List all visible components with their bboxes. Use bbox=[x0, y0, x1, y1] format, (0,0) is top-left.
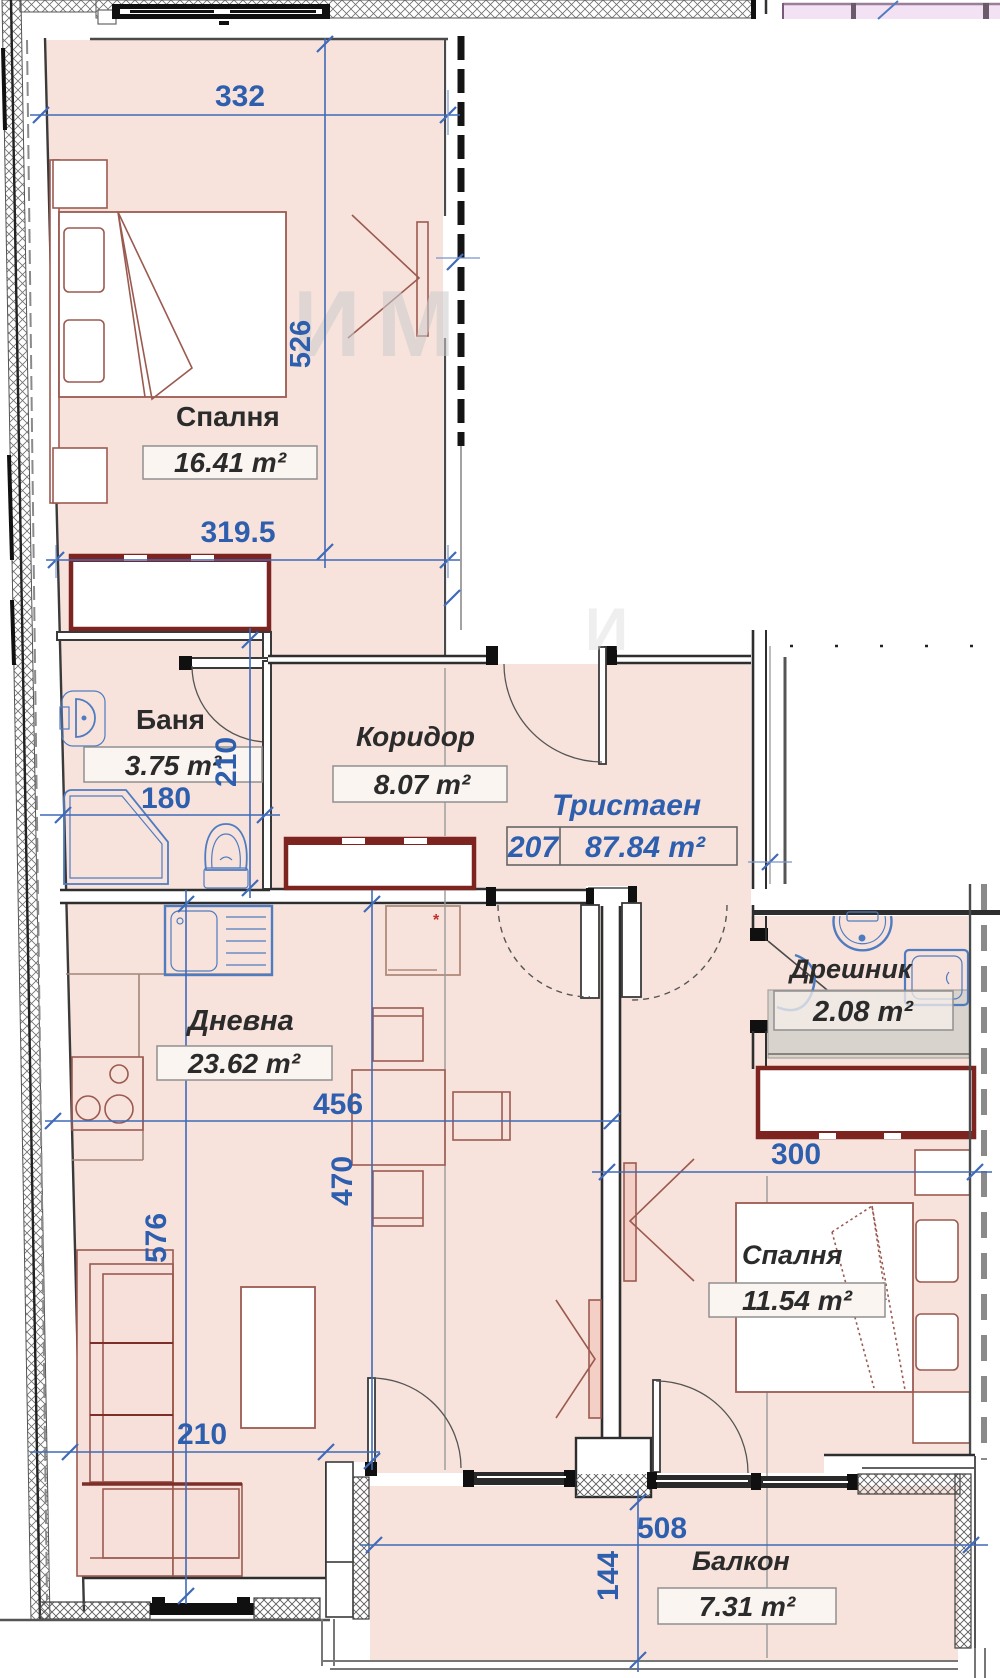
svg-text:210: 210 bbox=[177, 1418, 227, 1451]
svg-text:Спалня: Спалня bbox=[742, 1240, 842, 1270]
svg-text:207: 207 bbox=[507, 831, 559, 864]
svg-text:508: 508 bbox=[637, 1512, 687, 1545]
svg-text:Дрешник: Дрешник bbox=[788, 954, 913, 984]
svg-text:332: 332 bbox=[215, 80, 265, 113]
svg-text:180: 180 bbox=[141, 782, 191, 815]
svg-text:Балкон: Балкон bbox=[692, 1546, 790, 1576]
svg-text:8.07 m²: 8.07 m² bbox=[374, 769, 471, 800]
svg-text:23.62 m²: 23.62 m² bbox=[187, 1048, 301, 1079]
svg-text:210: 210 bbox=[210, 737, 243, 787]
svg-text:*: * bbox=[433, 912, 440, 929]
svg-text:319.5: 319.5 bbox=[200, 516, 275, 549]
svg-text:Баня: Баня bbox=[136, 704, 205, 735]
svg-text:16.41 m²: 16.41 m² bbox=[174, 447, 287, 478]
svg-text:ИМ: ИМ bbox=[293, 271, 471, 376]
svg-text:300: 300 bbox=[771, 1138, 821, 1171]
svg-text:456: 456 bbox=[313, 1088, 363, 1121]
svg-text:576: 576 bbox=[140, 1213, 173, 1263]
svg-text:144: 144 bbox=[592, 1551, 625, 1601]
svg-text:11.54 m²: 11.54 m² bbox=[742, 1285, 853, 1316]
svg-text:Тристаен: Тристаен bbox=[552, 789, 701, 822]
svg-text:Дневна: Дневна bbox=[185, 1005, 294, 1037]
svg-text:И: И bbox=[585, 596, 628, 663]
svg-text:2.08 m²: 2.08 m² bbox=[812, 996, 914, 1028]
svg-text:Спалня: Спалня bbox=[176, 401, 280, 432]
svg-text:526: 526 bbox=[285, 320, 317, 368]
svg-text:87.84 m²: 87.84 m² bbox=[585, 831, 706, 864]
svg-text:470: 470 bbox=[326, 1156, 359, 1206]
svg-text:Коридор: Коридор bbox=[356, 721, 475, 752]
svg-text:7.31 m²: 7.31 m² bbox=[699, 1591, 796, 1622]
svg-text:3.75 m²: 3.75 m² bbox=[125, 750, 222, 781]
